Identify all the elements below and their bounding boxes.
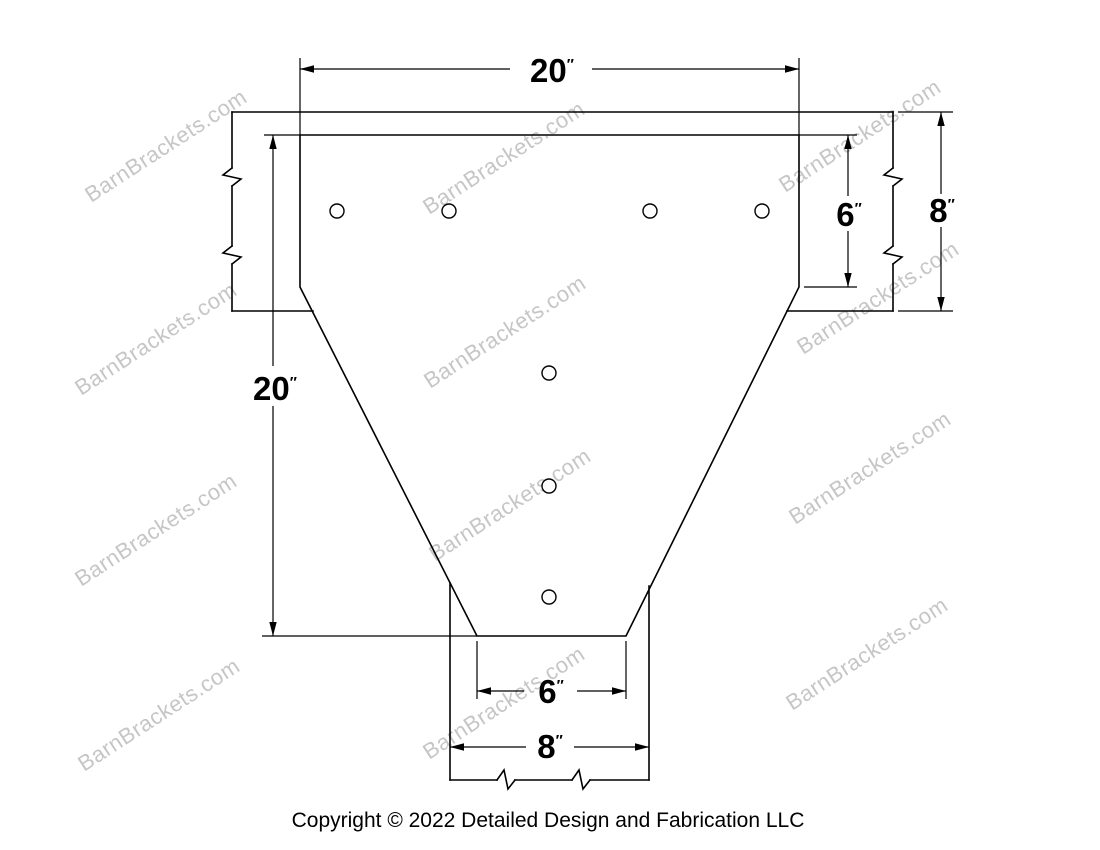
arrowhead (785, 65, 799, 73)
technical-drawing-svg: 20″ 20″ 6″ 8″ (0, 0, 1100, 850)
bolt-hole (442, 204, 456, 218)
dim-label-right-inner: 6″ (836, 196, 862, 233)
dim-label-right-outer: 8″ (929, 192, 955, 229)
arrowhead (477, 687, 491, 694)
bolt-hole (755, 204, 769, 218)
bolt-hole (330, 204, 344, 218)
arrowhead (300, 65, 314, 73)
arrowhead (937, 297, 944, 311)
break-symbol (884, 246, 902, 264)
break-symbol (497, 770, 515, 789)
bolt-holes (330, 204, 769, 604)
dim-label-left-height: 20″ (253, 370, 297, 407)
bolt-hole (542, 590, 556, 604)
arrowhead (635, 743, 649, 750)
bracket-plate-polygon (300, 135, 799, 636)
dim-label-bottom-outer: 8″ (537, 728, 563, 765)
dim-bottom-outer-width: 8″ (450, 728, 649, 765)
break-symbol (223, 246, 241, 264)
break-symbol (884, 168, 902, 186)
break-symbol (572, 770, 590, 789)
arrowhead (450, 743, 464, 750)
bolt-hole (542, 479, 556, 493)
drawing-canvas: BarnBrackets.com BarnBrackets.com BarnBr… (0, 0, 1100, 850)
bracket-plate-outline (300, 135, 799, 636)
bolt-hole (643, 204, 657, 218)
break-symbol (223, 168, 241, 186)
copyright-text: Copyright © 2022 Detailed Design and Fab… (292, 809, 805, 833)
dim-right-outer-height: 8″ (898, 112, 955, 311)
dim-bottom-inner-width: 6″ (477, 641, 626, 710)
beam-outline (223, 112, 902, 311)
arrowhead (844, 135, 851, 149)
dim-label-bottom-inner: 6″ (538, 673, 564, 710)
dim-right-inner-height: 6″ (799, 135, 862, 287)
dim-top-width: 20″ (300, 52, 799, 135)
arrowhead (612, 687, 626, 694)
arrowhead (937, 112, 944, 126)
arrowhead (269, 135, 276, 149)
arrowhead (269, 622, 276, 636)
bolt-hole (542, 366, 556, 380)
dim-label-top-width: 20″ (530, 52, 574, 89)
arrowhead (844, 273, 851, 287)
